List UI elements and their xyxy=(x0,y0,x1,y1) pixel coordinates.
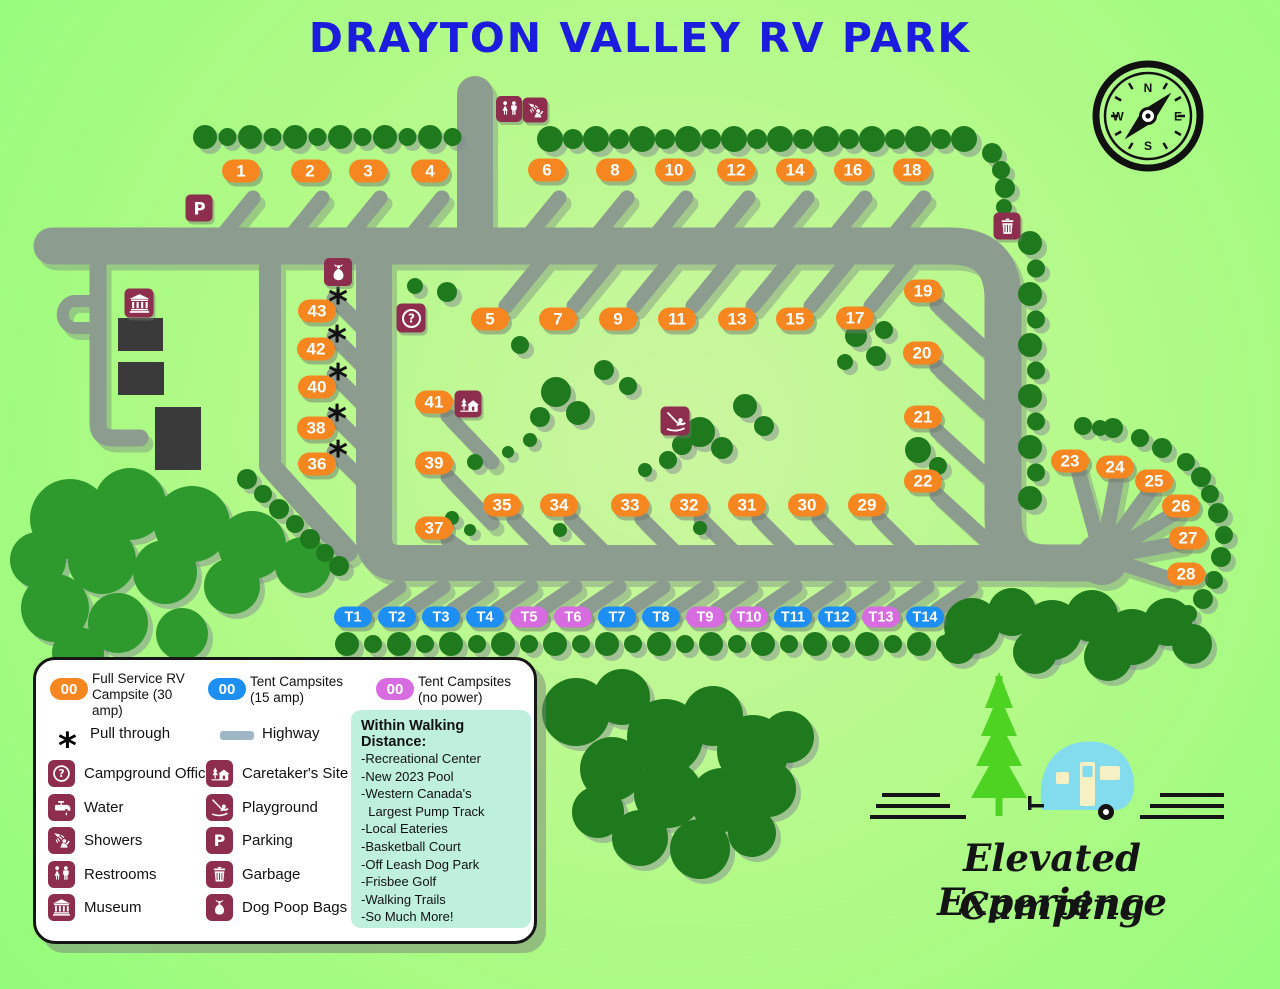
compass-w: W xyxy=(1112,110,1124,124)
walking-distance-item: -Recreational Center xyxy=(361,750,531,768)
tent-site-marker-T14: T14 xyxy=(906,607,944,628)
tent-site-marker-T12: T12 xyxy=(818,607,856,628)
walking-distance-box: Within Walking Distance: -Recreational C… xyxy=(351,710,531,928)
rv-site-marker-35: 35 xyxy=(483,494,521,517)
buildings xyxy=(118,318,201,470)
rv-site-marker-37: 37 xyxy=(415,517,453,540)
rv-site-marker-16: 16 xyxy=(834,159,872,182)
walking-distance-title: Within Walking Distance: xyxy=(361,718,531,750)
rv-site-marker-1: 1 xyxy=(222,160,260,183)
rv-site-marker-20: 20 xyxy=(903,342,941,365)
rv-site-marker-11: 11 xyxy=(658,308,696,331)
rv-site-marker-23: 23 xyxy=(1051,450,1089,473)
rv-site-marker-17: 17 xyxy=(836,307,874,330)
logo-line xyxy=(1140,815,1224,819)
rv-site-marker-12: 12 xyxy=(717,159,755,182)
rv-site-marker-25: 25 xyxy=(1135,470,1173,493)
rv-site-marker-3: 3 xyxy=(349,160,387,183)
legend-tentnp-label: Tent Campsites (no power) xyxy=(418,674,523,706)
compass-s: S xyxy=(1144,139,1152,153)
restrooms-legend-icon xyxy=(48,861,75,888)
walking-distance-item: -Frisbee Golf xyxy=(361,873,531,891)
rv-site-marker-5: 5 xyxy=(471,308,509,331)
museum-legend-label: Museum xyxy=(84,894,142,921)
showers-legend-label: Showers xyxy=(84,827,142,854)
tent-site-marker-T11: T11 xyxy=(774,607,812,628)
parking-icon xyxy=(186,195,213,222)
walking-distance-item: -New 2023 Pool xyxy=(361,768,531,786)
walking-distance-item: -So Much More! xyxy=(361,908,531,926)
showers-icon xyxy=(523,98,548,123)
dog-poop-bags-legend-label: Dog Poop Bags xyxy=(242,894,347,921)
rv-site-marker-15: 15 xyxy=(776,308,814,331)
rv-site-marker-8: 8 xyxy=(596,159,634,182)
playground-legend-icon xyxy=(206,794,233,821)
caretakers-site-icon xyxy=(455,391,482,418)
logo-line xyxy=(1150,804,1224,808)
museum-legend-icon xyxy=(48,894,75,921)
pull-through-asterisk: * xyxy=(328,373,348,383)
rv-site-marker-22: 22 xyxy=(904,470,942,493)
rv-site-marker-13: 13 xyxy=(718,308,756,331)
logo-tree-icon xyxy=(971,672,1027,816)
restrooms-legend-label: Restrooms xyxy=(84,861,157,888)
showers-legend-icon xyxy=(48,827,75,854)
logo-line xyxy=(870,815,966,819)
caretakers-site-legend-label: Caretaker's Site xyxy=(242,760,348,787)
tent-site-marker-T3: T3 xyxy=(422,607,460,628)
legend-tent15-label: Tent Campsites (15 amp) xyxy=(250,674,355,706)
tent-site-marker-T10: T10 xyxy=(730,607,768,628)
compass-rose: N E S W xyxy=(1096,64,1200,168)
logo-camper-icon xyxy=(1028,741,1134,820)
rv-site-marker-26: 26 xyxy=(1162,495,1200,518)
caretakers-site-legend-icon xyxy=(206,760,233,787)
pull-through-asterisk: * xyxy=(328,450,348,460)
rv-site-marker-30: 30 xyxy=(788,494,826,517)
pull-through-asterisk: * xyxy=(327,414,347,424)
rv-site-marker-10: 10 xyxy=(655,159,693,182)
pull-through-asterisk: * xyxy=(328,297,348,307)
highway-swatch xyxy=(220,731,254,740)
garbage-legend-icon xyxy=(206,861,233,888)
park-map: ? xyxy=(0,0,1280,989)
rv-site-marker-34: 34 xyxy=(540,494,578,517)
legend-rv-pill: 00 xyxy=(50,678,88,700)
rv-site-marker-27: 27 xyxy=(1169,527,1207,550)
parking-legend-label: Parking xyxy=(242,827,293,854)
rv-site-marker-24: 24 xyxy=(1096,456,1134,479)
rv-site-marker-6: 6 xyxy=(528,159,566,182)
tent-site-marker-T4: T4 xyxy=(466,607,504,628)
park-title: DRAYTON VALLEY RV PARK xyxy=(0,14,1280,62)
legend-box: 00 Full Service RV Campsite (30 amp) 00 … xyxy=(33,657,537,944)
rv-site-marker-41: 41 xyxy=(415,391,453,414)
walking-distance-item: Largest Pump Track xyxy=(361,803,531,821)
rv-site-marker-28: 28 xyxy=(1167,563,1205,586)
legend-rv-label: Full Service RV Campsite (30 amp) xyxy=(92,671,192,719)
campground-office-legend-label: Campground Office xyxy=(84,760,214,787)
rv-site-marker-18: 18 xyxy=(893,159,931,182)
campground-office-icon xyxy=(397,304,426,333)
pull-through-label: Pull through xyxy=(90,726,170,742)
tent-site-marker-T2: T2 xyxy=(378,607,416,628)
legend-tent15-pill: 00 xyxy=(208,678,246,700)
rv-site-marker-31: 31 xyxy=(728,494,766,517)
rv-site-marker-33: 33 xyxy=(611,494,649,517)
tent-site-marker-T5: T5 xyxy=(510,607,548,628)
legend-tentnp-pill: 00 xyxy=(376,678,414,700)
rv-site-marker-14: 14 xyxy=(776,159,814,182)
dog-poop-bags-icon xyxy=(324,258,352,286)
logo-text-line2: Camping xyxy=(842,884,1262,928)
water-legend-label: Water xyxy=(84,794,123,821)
tent-site-marker-T13: T13 xyxy=(862,607,900,628)
walking-distance-item: -Local Eateries xyxy=(361,820,531,838)
rv-site-marker-32: 32 xyxy=(670,494,708,517)
garbage-legend-label: Garbage xyxy=(242,861,300,888)
tent-site-marker-T6: T6 xyxy=(554,607,592,628)
playground-legend-label: Playground xyxy=(242,794,318,821)
rv-site-marker-2: 2 xyxy=(291,160,329,183)
water-legend-icon xyxy=(48,794,75,821)
compass-n: N xyxy=(1144,81,1153,95)
walking-distance-item: -Off Leash Dog Park xyxy=(361,856,531,874)
dog-poop-bags-legend-icon xyxy=(206,894,233,921)
compass-e: E xyxy=(1174,110,1182,124)
rv-site-marker-19: 19 xyxy=(904,280,942,303)
walking-distance-item: -Western Canada's xyxy=(361,785,531,803)
restrooms-icon xyxy=(496,96,522,122)
walking-distance-item: -Walking Trails xyxy=(361,891,531,909)
walking-distance-item: -Basketball Court xyxy=(361,838,531,856)
playground-icon xyxy=(661,407,690,436)
campground-office-legend-icon xyxy=(48,760,75,787)
rv-site-marker-4: 4 xyxy=(411,160,449,183)
rv-site-marker-39: 39 xyxy=(415,452,453,475)
rv-site-marker-29: 29 xyxy=(848,494,886,517)
logo-line xyxy=(876,804,950,808)
garbage-icon xyxy=(994,213,1021,240)
tent-site-marker-T7: T7 xyxy=(598,607,636,628)
tent-site-marker-T1: T1 xyxy=(334,607,372,628)
highway-label: Highway xyxy=(262,726,320,742)
parking-legend-icon xyxy=(206,827,233,854)
logo-line xyxy=(1160,793,1224,797)
rv-site-marker-21: 21 xyxy=(904,406,942,429)
tent-site-marker-T8: T8 xyxy=(642,607,680,628)
rv-site-marker-7: 7 xyxy=(539,308,577,331)
logo-line xyxy=(882,793,940,797)
pull-through-asterisk: * xyxy=(327,335,347,345)
rv-site-marker-9: 9 xyxy=(599,308,637,331)
tent-site-marker-T9: T9 xyxy=(686,607,724,628)
museum-icon xyxy=(125,289,154,318)
